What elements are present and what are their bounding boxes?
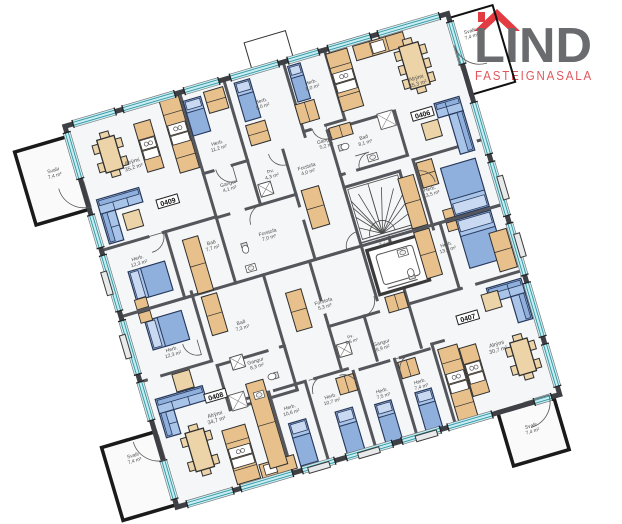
svg-text:FASTEIGNASALA: FASTEIGNASALA [475,69,593,83]
svg-text:LIND: LIND [474,19,592,73]
